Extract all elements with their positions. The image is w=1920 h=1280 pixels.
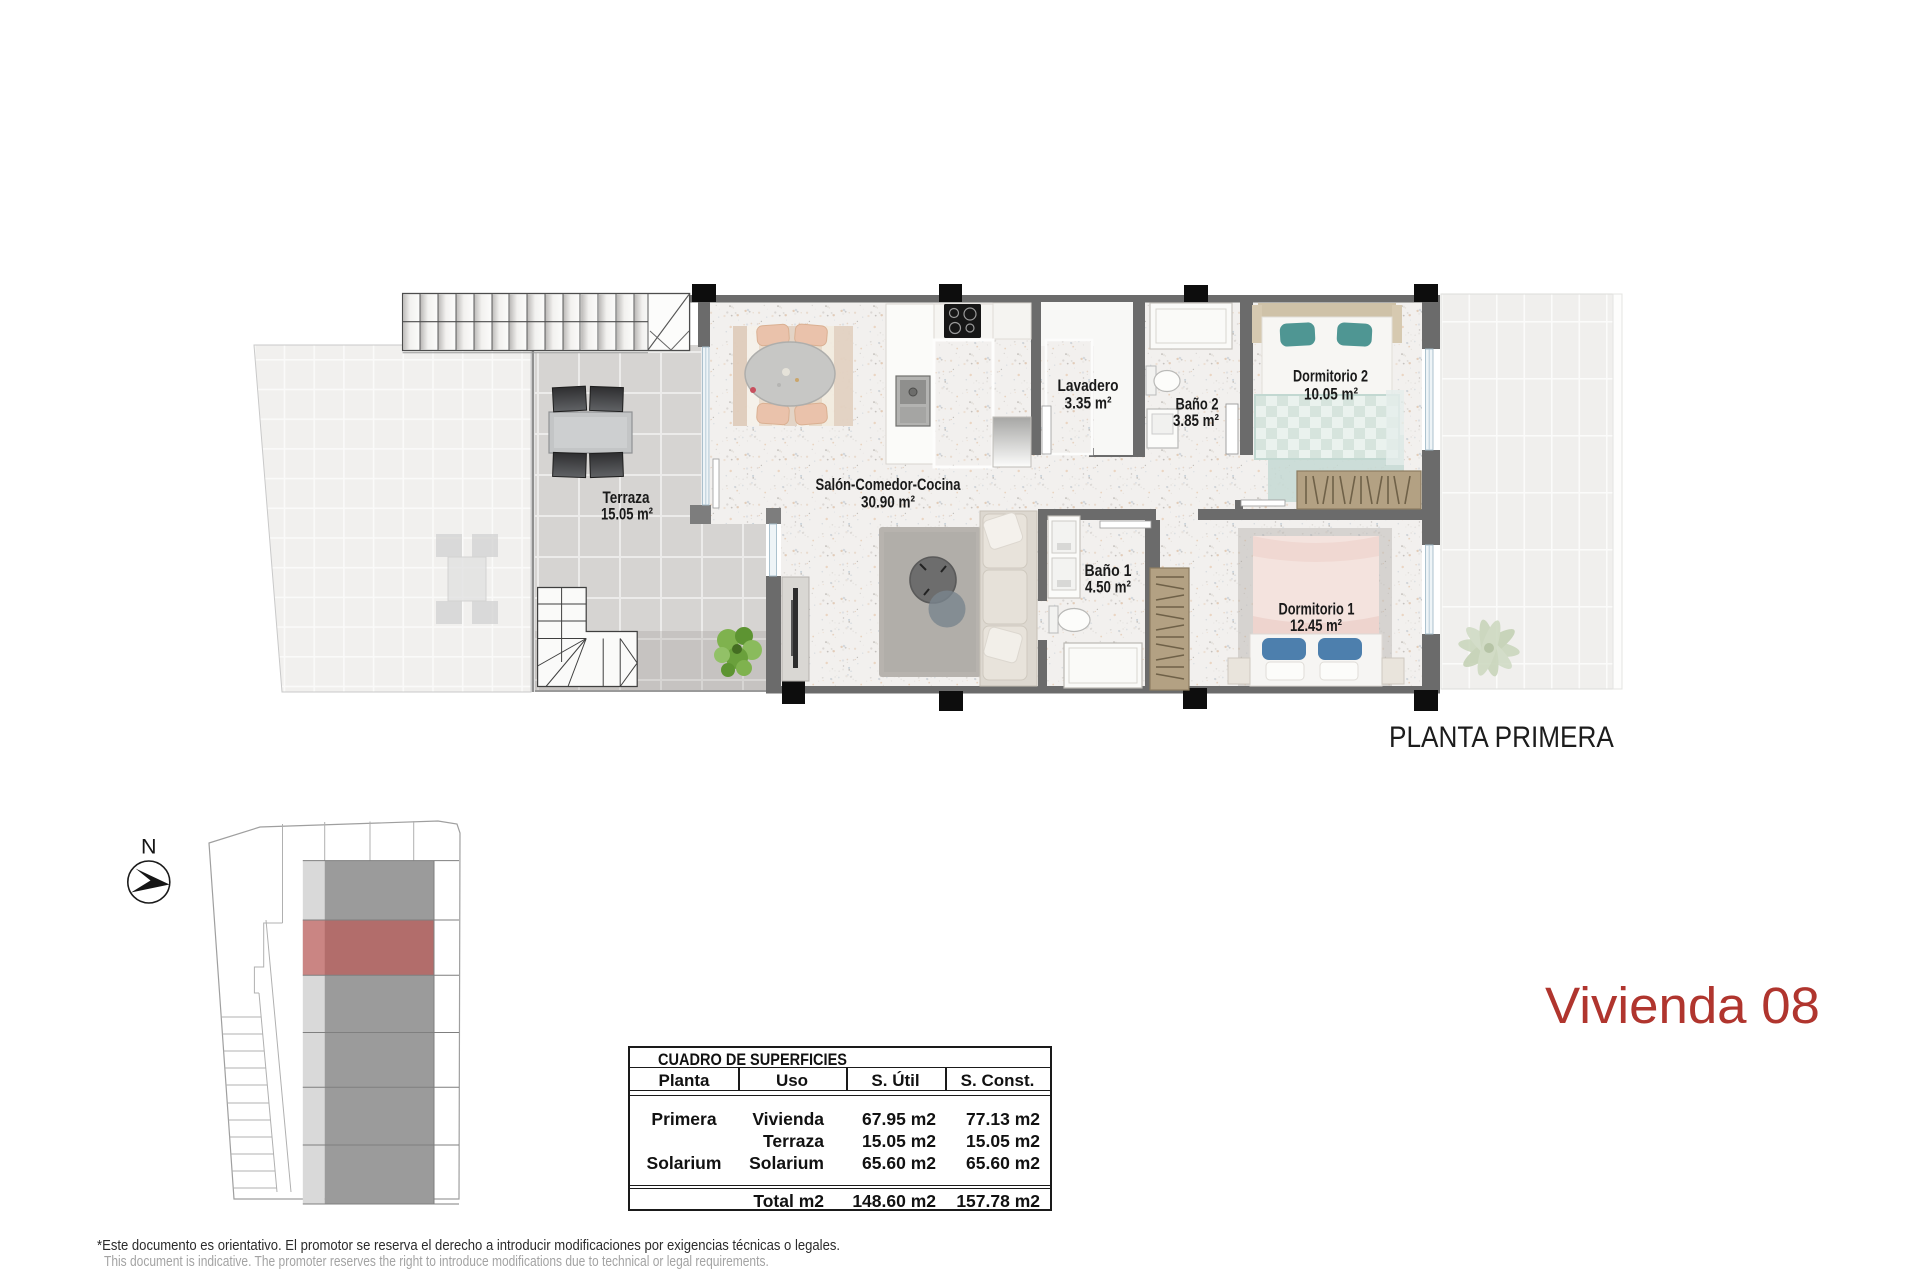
- svg-text:Baño 1: Baño 1: [1085, 562, 1132, 580]
- svg-text:12.45 m²: 12.45 m²: [1290, 617, 1342, 635]
- svg-text:4.50 m²: 4.50 m²: [1085, 579, 1131, 597]
- svg-text:30.90 m²: 30.90 m²: [861, 494, 915, 512]
- svg-text:3.85 m²: 3.85 m²: [1173, 412, 1219, 430]
- svg-text:3.35 m²: 3.35 m²: [1065, 395, 1112, 413]
- svg-text:Lavadero: Lavadero: [1058, 377, 1119, 395]
- svg-text:Salón-Comedor-Cocina: Salón-Comedor-Cocina: [816, 476, 962, 494]
- svg-text:10.05 m²: 10.05 m²: [1304, 386, 1358, 404]
- svg-text:Baño 2: Baño 2: [1176, 396, 1219, 414]
- svg-text:Dormitorio 1: Dormitorio 1: [1279, 601, 1355, 619]
- svg-text:Terraza: Terraza: [603, 489, 651, 507]
- svg-text:Dormitorio 2: Dormitorio 2: [1293, 368, 1368, 386]
- svg-text:N: N: [141, 835, 157, 859]
- svg-text:15.05 m²: 15.05 m²: [601, 506, 653, 524]
